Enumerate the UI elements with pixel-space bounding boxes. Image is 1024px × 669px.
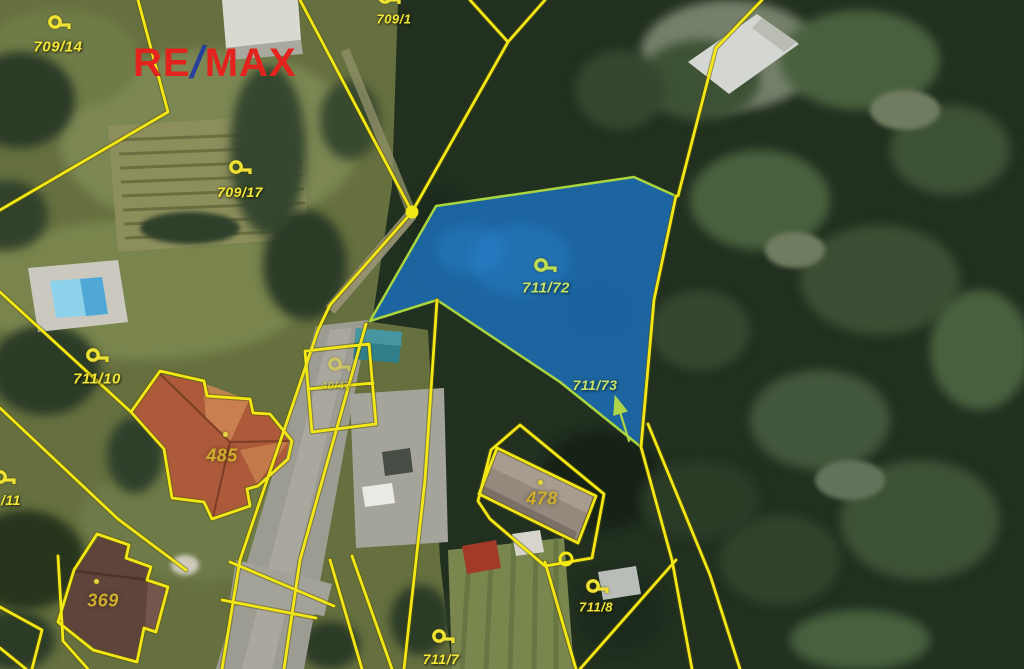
parcel-marker-icon: [85, 346, 115, 368]
remax-logo-max: MAX: [205, 41, 297, 85]
building-dot: [223, 432, 228, 437]
car-white: [362, 483, 395, 507]
parcel-marker-icon: [431, 627, 461, 649]
parcel-label-709-1: 709/1: [376, 12, 411, 27]
remax-logo: RE/MAX: [133, 43, 297, 83]
parcel-label-711-73: 711/73: [573, 377, 618, 393]
remax-logo-re: RE: [133, 41, 191, 85]
parcel-label-711-11: /11: [1, 492, 21, 508]
parcel-label-711-72: 711/72: [522, 280, 570, 297]
parcel-marker-icon: [228, 158, 258, 180]
parcel-label-709-14: 709/14: [34, 39, 83, 56]
parcel-label-709-17: 709/17: [217, 184, 263, 200]
shed-red: [462, 540, 501, 574]
building-label-478: 478: [526, 489, 558, 510]
boundary-node: [406, 206, 419, 219]
parcel-marker-icon: [377, 0, 407, 10]
parcel-label-711-10: 711/10: [73, 371, 121, 388]
building-label-485: 485: [206, 446, 238, 467]
parcel-label-711-8: 711/8: [579, 600, 613, 615]
parcel-marker-icon: [0, 468, 22, 490]
building-dot: [538, 480, 543, 485]
cadastral-map: 709/14 709/1 709/17 711/10 /11 711/72 71…: [0, 0, 1024, 669]
parcel-marker-icon: [585, 577, 615, 599]
parcel-label-40-47: 40/47: [321, 380, 351, 392]
parcel-marker-icon: [327, 355, 357, 377]
parcel-marker-icon: [533, 256, 563, 278]
aerial-map-canvas: [0, 0, 1024, 669]
parcel-marker-icon: [47, 13, 77, 35]
car-dark: [382, 448, 413, 476]
parcel-label-711-7: 711/7: [423, 651, 460, 667]
building-label-369: 369: [87, 591, 119, 612]
building-dot: [94, 579, 99, 584]
